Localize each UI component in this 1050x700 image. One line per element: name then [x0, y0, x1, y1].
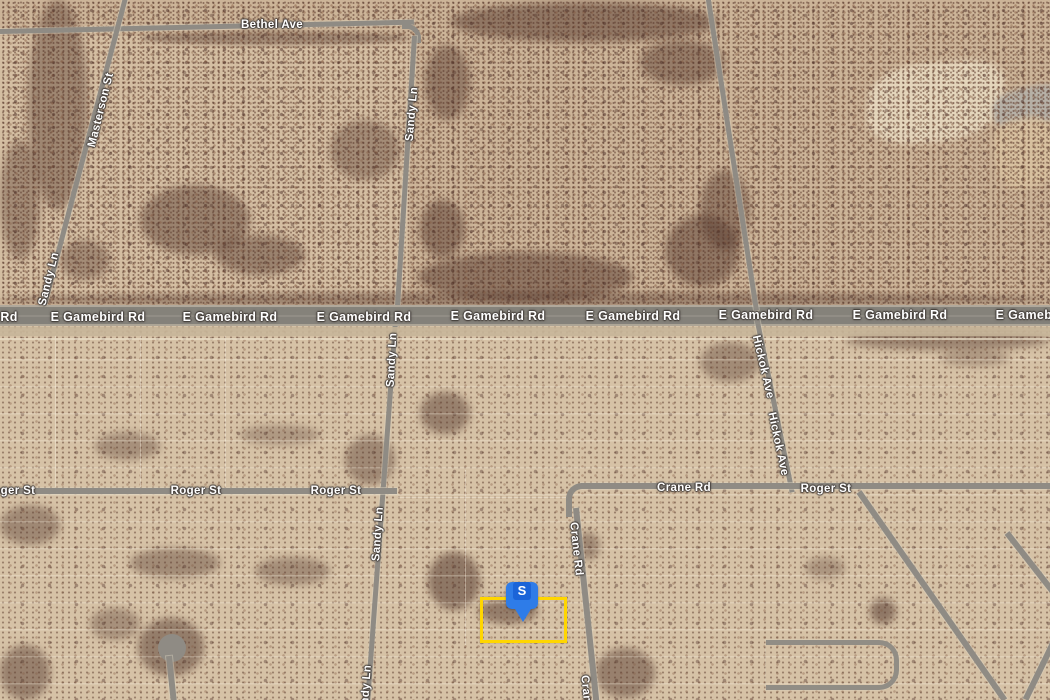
parcel-line [398, 497, 566, 498]
road-label-e-gamebird-rd: E Gamebird Rd [719, 308, 814, 322]
satellite-map-canvas[interactable]: Bethel Ave Sandy Ln Masterson St Sandy L… [0, 0, 1050, 700]
road-label-gamebird-partial: Rd [0, 310, 17, 324]
road-label-e-gamebird-rd: E Gamebird Rd [996, 308, 1050, 322]
road-label-e-gamebird-rd: E Gamebird Rd [451, 309, 546, 323]
road-label-e-gamebird-rd: E Gamebird Rd [51, 310, 146, 324]
parcel-line [55, 335, 56, 487]
road-label-bethel-ave: Bethel Ave [241, 19, 303, 31]
road-hairpin-loop [766, 640, 899, 690]
parcel-line [225, 335, 226, 487]
marker-label: S [513, 582, 531, 600]
marker-head: S [506, 582, 538, 609]
road-label-roger-st: Roger St [0, 485, 35, 497]
map-marker[interactable]: S [506, 578, 540, 622]
marker-tail [515, 609, 531, 622]
parcel-line [140, 335, 141, 487]
road-label-roger-st: Roger St [311, 485, 362, 497]
road-shoulder [0, 327, 1050, 336]
dirt-track [0, 338, 1050, 340]
road-label-roger-st: Roger St [171, 485, 222, 497]
road-label-e-gamebird-rd: E Gamebird Rd [317, 310, 412, 324]
road-label-roger-st: Roger St [801, 483, 852, 495]
desert-texture-dense [0, 0, 1050, 306]
road-label-crane-rd: Crane Rd [657, 482, 711, 494]
road-label-e-gamebird-rd: E Gamebird Rd [586, 309, 681, 323]
road-label-e-gamebird-rd: E Gamebird Rd [853, 308, 948, 322]
road-label-e-gamebird-rd: E Gamebird Rd [183, 310, 278, 324]
